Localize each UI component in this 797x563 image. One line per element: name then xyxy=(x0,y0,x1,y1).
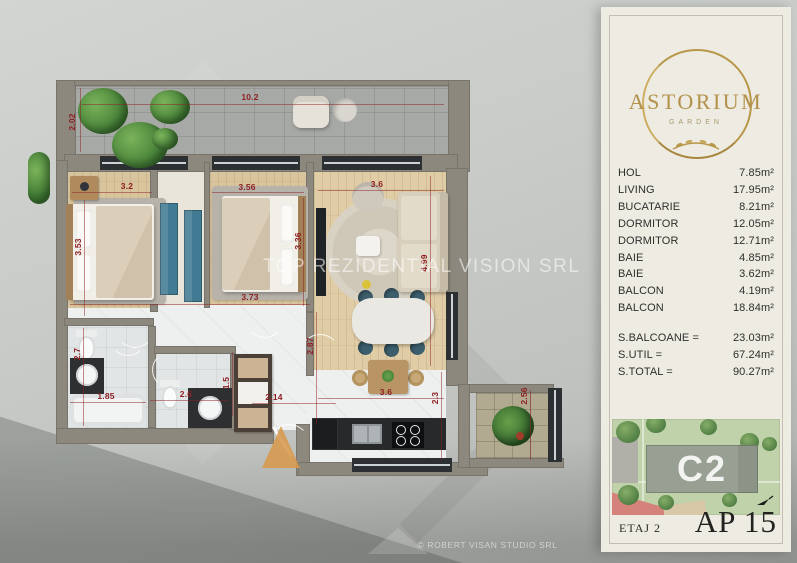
area-total-row: S.BALCOANE = 23.03m² xyxy=(618,330,774,347)
armchair xyxy=(352,182,384,212)
tree-icon xyxy=(700,419,717,435)
pillow xyxy=(280,204,294,242)
site-plan-thumbnail: C2 xyxy=(612,419,780,515)
kitchen-sink xyxy=(352,424,382,444)
room-name: BAIE xyxy=(618,250,643,267)
hall-closet xyxy=(234,354,272,432)
plant xyxy=(152,128,178,150)
room-name: BUCATARIE xyxy=(618,199,680,216)
balcony-plant xyxy=(492,406,534,446)
room-name: BALCON xyxy=(618,283,664,300)
apartment-brochure: 10.22.023.23.533.563.363.64.993.732.872.… xyxy=(0,0,797,563)
toilet xyxy=(78,336,95,360)
tree-icon xyxy=(616,421,640,443)
area-total-row: S.TOTAL = 90.27m² xyxy=(618,364,774,381)
desk-chair xyxy=(352,370,368,386)
room-area: 12.71m² xyxy=(733,233,774,250)
total-name: S.TOTAL = xyxy=(618,364,673,381)
orange-triangle-watermark xyxy=(262,426,300,468)
dining-table xyxy=(352,298,434,344)
tree-icon xyxy=(762,437,777,451)
room-area-row: BAIE 4.85m² xyxy=(618,250,774,267)
room-name: HOL xyxy=(618,165,641,182)
room-name: DORMITOR xyxy=(618,216,678,233)
total-name: S.UTIL = xyxy=(618,347,662,364)
room-area: 4.85m² xyxy=(739,250,774,267)
neighbor-building xyxy=(612,437,638,483)
room-area-row: DORMITOR 12.71m² xyxy=(618,233,774,250)
total-area: 23.03m² xyxy=(733,330,774,347)
terrace-side-table xyxy=(333,98,357,122)
room-area-row: HOL 7.85m² xyxy=(618,165,774,182)
room-name: BALCON xyxy=(618,300,664,317)
fridge xyxy=(312,418,338,450)
floor-label: ETAJ 2 xyxy=(619,521,661,536)
watermark-text: TOP REZIDENTIAL VISION SRL xyxy=(263,256,580,278)
window xyxy=(212,156,300,170)
room-area: 7.85m² xyxy=(739,165,774,182)
closet-shelf xyxy=(238,408,268,428)
brand-subtitle: GARDEN xyxy=(601,119,791,126)
bed-blanket xyxy=(96,206,152,298)
dining-chair xyxy=(384,342,399,357)
door-swing xyxy=(246,300,284,338)
balcony-window xyxy=(548,388,562,462)
room-area-row: BALCON 18.84m² xyxy=(618,300,774,317)
wall xyxy=(204,162,210,308)
fruit-bowl xyxy=(362,280,371,289)
room-area-row: BAIE 3.62m² xyxy=(618,266,774,283)
room-name: LIVING xyxy=(618,182,655,199)
bathtub xyxy=(70,394,146,426)
burner xyxy=(410,436,420,446)
pillow xyxy=(76,210,92,248)
info-panel: ASTORIUM GARDEN HOL 7.85m² LIVING 17.95m… xyxy=(601,7,791,552)
sink xyxy=(198,396,222,420)
pillow xyxy=(76,254,92,292)
wall xyxy=(56,80,76,164)
room-area: 18.84m² xyxy=(733,300,774,317)
wall xyxy=(74,80,452,86)
door-swing xyxy=(152,352,188,388)
wall xyxy=(56,160,68,444)
area-totals-list: S.BALCOANE = 23.03m² S.UTIL = 67.24m² S.… xyxy=(618,330,774,381)
building-label: C2 xyxy=(677,451,727,487)
total-area: 90.27m² xyxy=(733,364,774,381)
brand-logo: ASTORIUM GARDEN xyxy=(601,49,791,179)
terrace-armchair xyxy=(293,96,329,128)
room-area: 3.62m² xyxy=(739,266,774,283)
tree-icon xyxy=(618,485,639,505)
room-area-row: LIVING 17.95m² xyxy=(618,182,774,199)
desk-plant xyxy=(382,370,394,382)
tree-icon xyxy=(646,419,666,433)
window xyxy=(322,156,422,170)
wardrobe xyxy=(160,203,178,295)
kitchen-window xyxy=(352,458,452,472)
copyright-text: © ROBERT VISAN STUDIO SRL xyxy=(380,540,595,550)
plant xyxy=(150,90,190,124)
closet-shelf xyxy=(238,358,268,378)
coffee-table xyxy=(356,236,380,256)
room-area-row: DORMITOR 12.05m² xyxy=(618,216,774,233)
brand-name: ASTORIUM xyxy=(601,89,791,115)
wall xyxy=(458,384,470,468)
door-swing xyxy=(300,334,340,374)
desk-chair xyxy=(408,370,424,386)
room-name: DORMITOR xyxy=(618,233,678,250)
total-area: 67.24m² xyxy=(733,347,774,364)
apartment-number: AP 15 xyxy=(695,504,777,540)
toilet xyxy=(162,386,178,409)
total-name: S.BALCOANE = xyxy=(618,330,699,347)
plant xyxy=(28,152,50,204)
lamp xyxy=(80,182,89,191)
room-area: 4.19m² xyxy=(739,283,774,300)
closet-shelf xyxy=(238,382,268,404)
room-area: 17.95m² xyxy=(733,182,774,199)
laurel-icon xyxy=(669,133,723,155)
room-areas-list: HOL 7.85m² LIVING 17.95m² BUCATARIE 8.21… xyxy=(618,165,774,317)
door-swing xyxy=(110,320,146,356)
balcony-door xyxy=(446,292,458,360)
panel-footer: ETAJ 2 AP 15 xyxy=(617,504,777,540)
room-name: BAIE xyxy=(618,266,643,283)
room-area: 12.05m² xyxy=(733,216,774,233)
headboard xyxy=(66,204,73,300)
building-footprint: C2 xyxy=(646,445,758,493)
tv-console xyxy=(316,208,326,296)
wardrobe xyxy=(184,210,202,302)
wall xyxy=(468,384,554,393)
burner xyxy=(410,425,420,435)
room-area-row: BALCON 4.19m² xyxy=(618,283,774,300)
area-total-row: S.UTIL = 67.24m² xyxy=(618,347,774,364)
room-area-row: BUCATARIE 8.21m² xyxy=(618,199,774,216)
room-area: 8.21m² xyxy=(739,199,774,216)
cooktop xyxy=(392,422,424,448)
burner xyxy=(396,436,406,446)
sofa-cushion xyxy=(401,196,437,240)
sink xyxy=(76,364,98,386)
burner xyxy=(396,425,406,435)
